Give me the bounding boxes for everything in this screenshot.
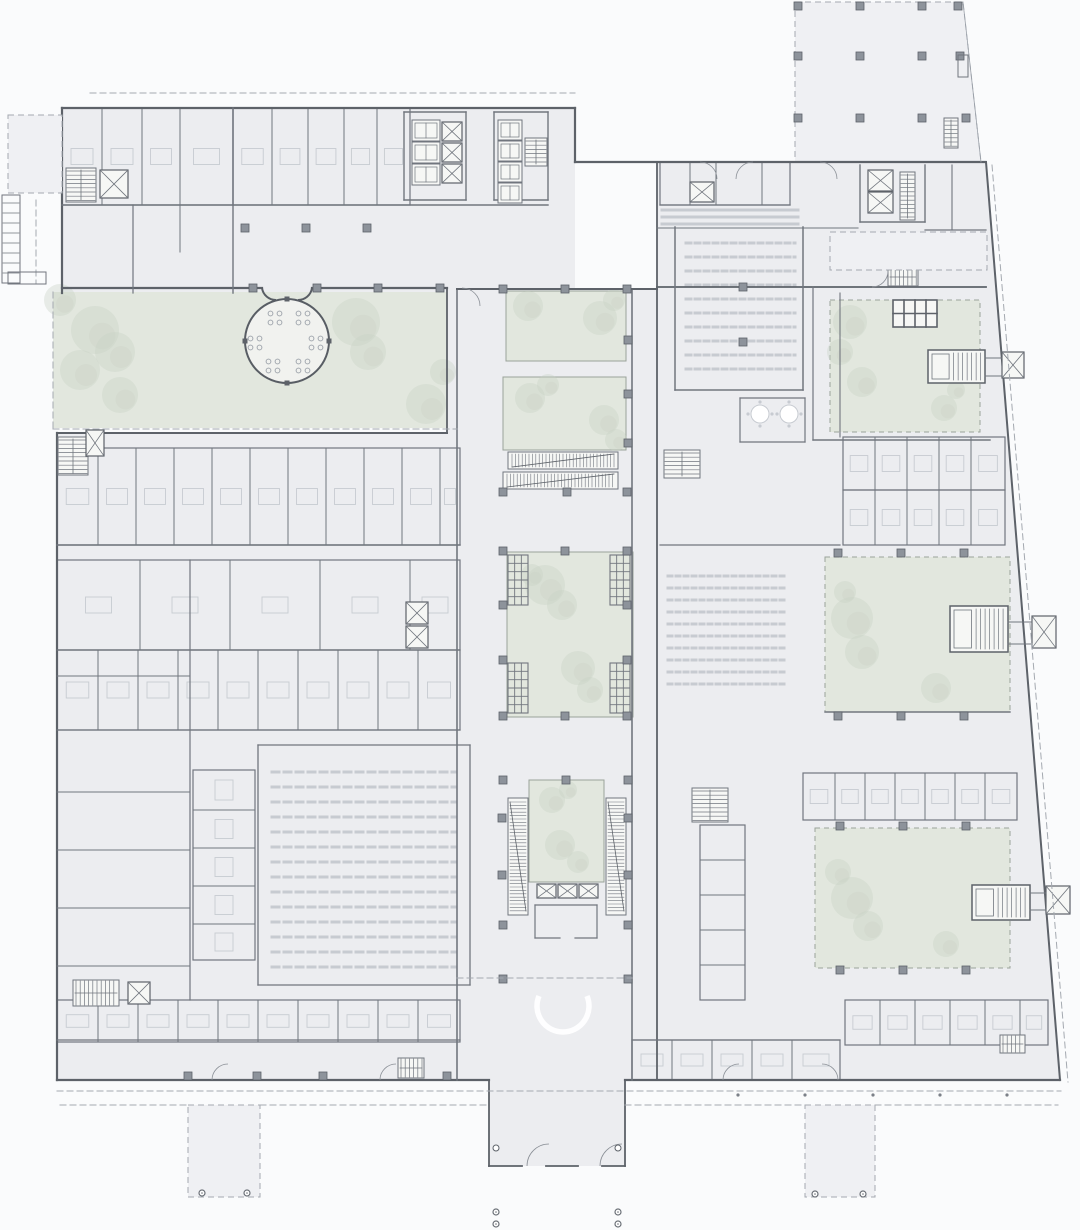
bollard-icon	[246, 1192, 248, 1194]
column	[499, 285, 507, 293]
tree-icon	[524, 302, 541, 319]
tree-icon	[549, 796, 563, 810]
bollard-icon	[617, 1223, 619, 1225]
round-table	[780, 405, 798, 423]
column	[794, 52, 802, 60]
column-dot	[803, 1093, 806, 1096]
column	[499, 656, 507, 664]
tree-icon	[954, 387, 964, 397]
tree-icon	[846, 317, 865, 336]
column	[184, 1072, 192, 1080]
column	[836, 822, 844, 830]
column	[623, 712, 631, 720]
chair-dot	[770, 412, 773, 415]
column	[363, 224, 371, 232]
column	[623, 656, 631, 664]
tree-icon	[364, 347, 384, 367]
column-dot	[1005, 1093, 1008, 1096]
column	[624, 871, 632, 879]
terrace-tick	[243, 339, 248, 344]
column	[374, 284, 382, 292]
tree-icon	[75, 364, 97, 386]
tree-icon	[110, 346, 132, 368]
vestibule-post	[493, 1145, 499, 1151]
column	[856, 52, 864, 60]
column	[960, 549, 968, 557]
tree-icon	[858, 378, 875, 395]
chair-dot	[758, 424, 761, 427]
column	[962, 114, 970, 122]
column	[498, 814, 506, 822]
column	[563, 488, 571, 496]
tree-icon	[587, 686, 601, 700]
column-dot	[871, 1093, 874, 1096]
column	[624, 975, 632, 983]
dashed-canopy	[805, 1105, 875, 1197]
column	[918, 52, 926, 60]
tree-icon	[864, 922, 881, 939]
column	[739, 338, 747, 346]
court-stair-pavilion-south	[972, 885, 1030, 920]
column	[856, 114, 864, 122]
column	[897, 712, 905, 720]
terrace-tick	[285, 297, 290, 302]
tree-icon	[835, 868, 849, 882]
tree-icon	[575, 859, 587, 871]
column	[499, 601, 507, 609]
tree-icon	[842, 589, 854, 601]
column	[624, 814, 632, 822]
chair-dot	[799, 412, 802, 415]
column	[623, 488, 631, 496]
bollard-icon	[495, 1211, 497, 1213]
column	[561, 285, 569, 293]
column	[960, 712, 968, 720]
dashed-canopy	[830, 232, 987, 270]
tree-icon	[611, 297, 623, 309]
column	[499, 488, 507, 496]
tree-icon	[932, 684, 949, 701]
column	[499, 776, 507, 784]
chair-dot	[758, 400, 761, 403]
column	[962, 822, 970, 830]
column	[443, 1072, 451, 1080]
column	[856, 2, 864, 10]
column	[739, 283, 747, 291]
tree-icon	[526, 394, 543, 411]
column	[499, 547, 507, 555]
tree-icon	[116, 390, 136, 410]
column	[319, 1072, 327, 1080]
tree-icon	[566, 787, 576, 797]
tree-icon	[529, 572, 541, 584]
column	[918, 2, 926, 10]
column	[899, 966, 907, 974]
column-dot	[736, 1093, 739, 1096]
column	[436, 284, 444, 292]
column	[561, 712, 569, 720]
column	[623, 285, 631, 293]
column	[253, 1072, 261, 1080]
tree-icon	[421, 398, 443, 420]
chair-dot	[775, 412, 778, 415]
bollard-icon	[495, 1223, 497, 1225]
column	[624, 921, 632, 929]
column	[834, 712, 842, 720]
column	[624, 776, 632, 784]
tree-icon	[613, 437, 625, 449]
column	[623, 547, 631, 555]
bollard-icon	[617, 1211, 619, 1213]
tree-icon	[837, 348, 851, 362]
column	[313, 284, 321, 292]
column	[499, 975, 507, 983]
tree-icon	[545, 382, 557, 394]
dashed-canopy	[8, 115, 62, 193]
column	[624, 390, 632, 398]
chair-dot	[787, 424, 790, 427]
column	[794, 2, 802, 10]
column	[794, 114, 802, 122]
column	[834, 549, 842, 557]
column	[624, 439, 632, 447]
tree-icon	[941, 404, 955, 418]
chair-dot	[787, 400, 790, 403]
terrace-tick	[327, 339, 332, 344]
column	[249, 284, 257, 292]
tree-icon	[847, 612, 870, 635]
column	[836, 966, 844, 974]
column	[561, 547, 569, 555]
tree-icon	[858, 647, 877, 666]
tree-icon	[56, 295, 74, 313]
chair-dot	[746, 412, 749, 415]
column	[954, 2, 962, 10]
column-dot	[938, 1093, 941, 1096]
column	[562, 776, 570, 784]
column	[897, 549, 905, 557]
terrace-circle	[245, 299, 329, 383]
column	[918, 114, 926, 122]
dashed-canopy	[188, 1105, 260, 1197]
column	[962, 966, 970, 974]
column	[624, 336, 632, 344]
round-table	[751, 405, 769, 423]
column	[899, 822, 907, 830]
terrace-tick	[285, 381, 290, 386]
bollard-icon	[862, 1193, 864, 1195]
bollard-icon	[201, 1192, 203, 1194]
column	[499, 921, 507, 929]
tree-icon	[558, 601, 575, 618]
bollard-icon	[814, 1193, 816, 1195]
court-stair-pavilion-middle	[950, 606, 1008, 652]
tree-icon	[943, 940, 957, 954]
column	[623, 601, 631, 609]
floor-plan-page	[0, 0, 1080, 1230]
column	[241, 224, 249, 232]
column	[956, 52, 964, 60]
column	[498, 871, 506, 879]
column	[302, 224, 310, 232]
column	[499, 712, 507, 720]
vestibule-post	[615, 1145, 621, 1151]
floor-plan-drawing	[0, 0, 1080, 1230]
tree-icon	[596, 313, 615, 332]
